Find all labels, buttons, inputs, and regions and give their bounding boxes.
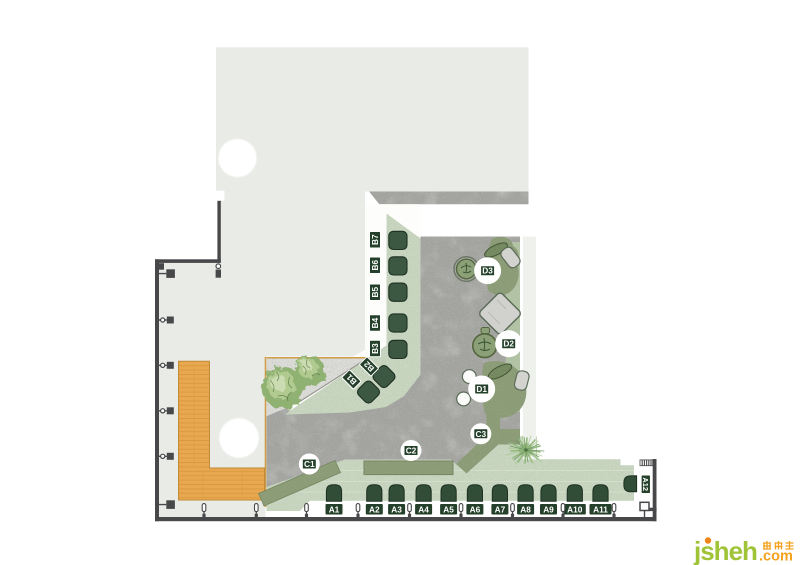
svg-text:A3: A3 [391, 504, 402, 514]
svg-text:B7: B7 [370, 234, 380, 245]
svg-text:B3: B3 [370, 343, 380, 354]
svg-text:C2: C2 [406, 446, 417, 456]
svg-text:A7: A7 [495, 504, 506, 514]
svg-text:.com: .com [759, 549, 793, 565]
svg-text:A9: A9 [543, 504, 554, 514]
svg-text:jsheh: jsheh [693, 536, 757, 565]
svg-text:A6: A6 [470, 504, 481, 514]
svg-text:D3: D3 [482, 266, 493, 276]
svg-text:C3: C3 [475, 429, 486, 439]
svg-text:D2: D2 [503, 339, 514, 349]
svg-text:A12: A12 [641, 477, 650, 491]
svg-text:A11: A11 [593, 504, 608, 514]
svg-text:D1: D1 [476, 384, 487, 394]
svg-text:A4: A4 [418, 504, 429, 514]
svg-text:B5: B5 [370, 287, 380, 298]
svg-text:A8: A8 [520, 504, 531, 514]
svg-text:B6: B6 [370, 260, 380, 271]
svg-text:A1: A1 [329, 504, 340, 514]
svg-text:A2: A2 [369, 504, 380, 514]
svg-text:B4: B4 [370, 317, 380, 328]
svg-text:C1: C1 [304, 459, 315, 469]
svg-text:A10: A10 [567, 504, 583, 514]
svg-text:A5: A5 [443, 504, 454, 514]
